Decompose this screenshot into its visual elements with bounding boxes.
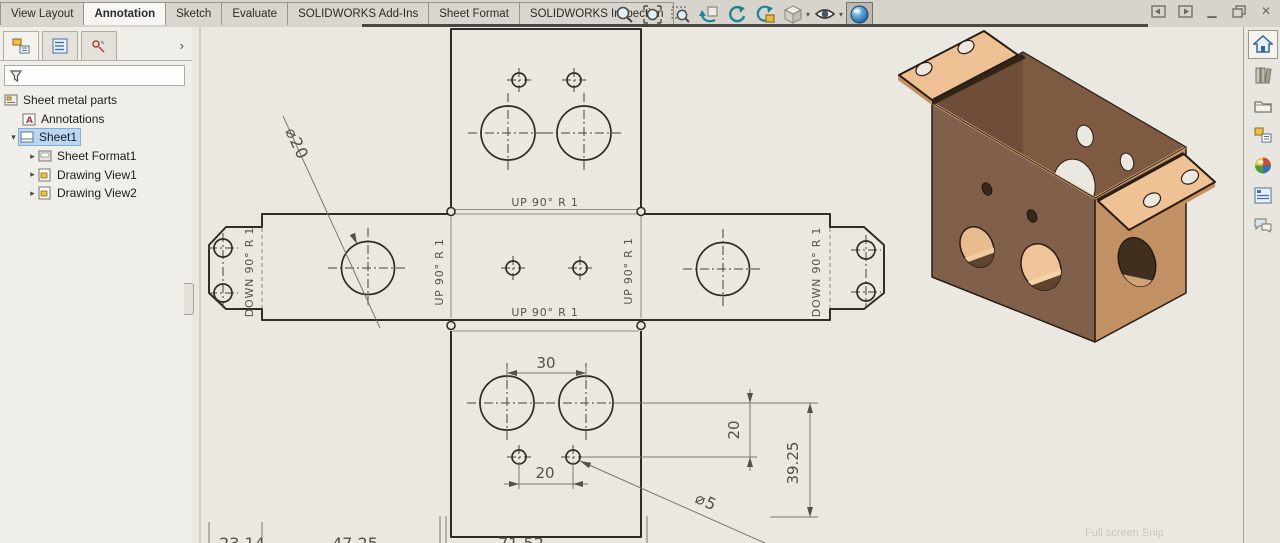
previous-view-icon[interactable] (696, 3, 721, 26)
annotations-folder-icon: A (22, 112, 37, 126)
minimize-icon[interactable]: ▁ (1204, 3, 1220, 19)
bend-label[interactable]: DOWN 90° R 1 (810, 227, 823, 317)
part-3d-view[interactable] (898, 31, 1215, 342)
tree-item-drawing-view2[interactable]: ▸ Drawing View2 (0, 184, 192, 203)
svg-text:A: A (26, 116, 33, 126)
collapse-caret-icon[interactable]: ▾ (8, 132, 19, 143)
sheet-icon (20, 130, 35, 144)
tab-sketch[interactable]: Sketch (165, 2, 222, 25)
expand-caret-icon[interactable]: ▸ (27, 151, 38, 162)
dimension-dia20[interactable]: ⌀20 (281, 125, 312, 163)
rotate-view-icon[interactable] (724, 3, 749, 26)
feature-manager-panel: › Sheet metal parts A Annotations ▾ (0, 27, 193, 543)
panel-expand-chevron-icon[interactable]: › (180, 38, 184, 53)
update-view-icon[interactable] (752, 3, 777, 26)
hide-show-dropdown-icon[interactable]: ▾ (839, 10, 843, 19)
collapse-pane-right-icon[interactable] (1177, 3, 1193, 19)
tree-item-sheet-metal-parts[interactable]: Sheet metal parts (0, 91, 192, 110)
display-style-dropdown-icon[interactable]: ▾ (806, 10, 810, 19)
bend-label[interactable]: UP 90° R 1 (511, 196, 578, 209)
tab-view-layout[interactable]: View Layout (0, 2, 84, 25)
dimension-20-holes[interactable]: 20 (535, 464, 554, 482)
close-icon[interactable]: ✕ (1258, 3, 1274, 19)
property-manager-icon[interactable] (42, 31, 78, 60)
drawing-sheet[interactable]: UP 90° R 1 UP 90° R 1 UP 90° R 1 UP 90° … (192, 27, 1243, 543)
command-tabs: View Layout Annotation Sketch Evaluate S… (0, 2, 673, 26)
sheet-format-icon (38, 149, 53, 163)
expand-caret-icon[interactable]: ▸ (27, 169, 38, 180)
bend-label[interactable]: UP 90° R 1 (433, 238, 446, 305)
flat-pattern-outline[interactable] (209, 29, 884, 537)
hide-show-items-icon[interactable] (813, 3, 838, 26)
panel-splitter-handle[interactable] (184, 283, 194, 315)
task-pane (1243, 27, 1280, 543)
expand-caret-icon[interactable]: ▸ (27, 188, 38, 199)
drawing-document-icon (4, 93, 19, 107)
tree-item-drawing-view1[interactable]: ▸ Drawing View1 (0, 165, 192, 184)
display-style-icon[interactable] (780, 3, 805, 26)
solidworks-window: View Layout Annotation Sketch Evaluate S… (0, 0, 1280, 543)
dimension-20-vertical[interactable]: 20 (725, 420, 743, 439)
restore-icon[interactable] (1231, 3, 1247, 19)
centerlines (208, 68, 881, 469)
collapse-pane-left-icon[interactable] (1150, 3, 1166, 19)
drawing-view-icon (38, 168, 53, 182)
snip-watermark: Full screen Snip (1085, 527, 1164, 539)
tree-item-label: Sheet Format1 (57, 149, 136, 163)
feature-manager-tree-icon[interactable] (3, 31, 39, 60)
tree-item-sheet-format1[interactable]: ▸ Sheet Format1 (0, 147, 192, 166)
appearances-scenes-icon[interactable] (1249, 152, 1277, 179)
dimension-47-25[interactable]: 47.25 (332, 534, 378, 543)
flat-pattern-holes (214, 73, 875, 464)
dimension-text: ⌀20 30 20 ⌀5 20 39.25 23.14 47.25 71.52 (219, 125, 802, 543)
dimension-23-14[interactable]: 23.14 (219, 534, 265, 543)
bend-label[interactable]: UP 90° R 1 (622, 237, 635, 304)
selected-tree-item: Sheet1 (19, 129, 80, 145)
dimension-30[interactable]: 30 (536, 354, 555, 372)
feature-tree: Sheet metal parts A Annotations ▾ Sheet1… (0, 91, 192, 203)
tree-item-sheet1[interactable]: ▾ Sheet1 (0, 128, 192, 147)
dimxpert-manager-icon[interactable] (81, 31, 117, 60)
tab-sheet-format[interactable]: Sheet Format (428, 2, 520, 25)
dimension-39-25[interactable]: 39.25 (784, 442, 802, 485)
file-explorer-icon[interactable] (1249, 92, 1277, 119)
tree-item-annotations[interactable]: A Annotations (0, 110, 192, 129)
tree-item-label: Sheet1 (39, 130, 77, 144)
home-icon[interactable] (1248, 30, 1278, 59)
zoom-to-fit-icon[interactable] (640, 3, 665, 26)
tab-solidworks-add-ins[interactable]: SOLIDWORKS Add-Ins (287, 2, 429, 25)
tree-item-label: Drawing View1 (57, 168, 137, 182)
dimension-dia5[interactable]: ⌀5 (692, 488, 720, 514)
tab-evaluate[interactable]: Evaluate (221, 2, 288, 25)
bend-label[interactable]: DOWN 90° R 1 (243, 227, 256, 317)
design-library-icon[interactable] (1249, 62, 1277, 89)
zoom-to-area-icon[interactable] (668, 3, 693, 26)
view-palette-icon[interactable] (1249, 122, 1277, 149)
tree-filter-box[interactable] (4, 65, 185, 86)
zoom-in-icon[interactable] (612, 3, 637, 26)
bend-label[interactable]: UP 90° R 1 (511, 306, 578, 319)
custom-properties-icon[interactable] (1249, 182, 1277, 209)
graphics-area[interactable]: UP 90° R 1 UP 90° R 1 UP 90° R 1 UP 90° … (192, 27, 1243, 543)
drawing-view-icon (38, 186, 53, 200)
tree-item-label: Sheet metal parts (23, 93, 117, 107)
filter-funnel-icon (9, 69, 23, 83)
manager-tab-strip: › (0, 31, 192, 61)
dimension-71-52[interactable]: 71.52 (498, 534, 544, 543)
tree-item-label: Annotations (41, 112, 104, 126)
forum-icon[interactable] (1249, 212, 1277, 239)
dimension-lines (209, 116, 828, 543)
tab-annotation[interactable]: Annotation (83, 2, 166, 25)
window-controls: ▁ ✕ (1150, 3, 1274, 19)
tree-item-label: Drawing View2 (57, 186, 137, 200)
